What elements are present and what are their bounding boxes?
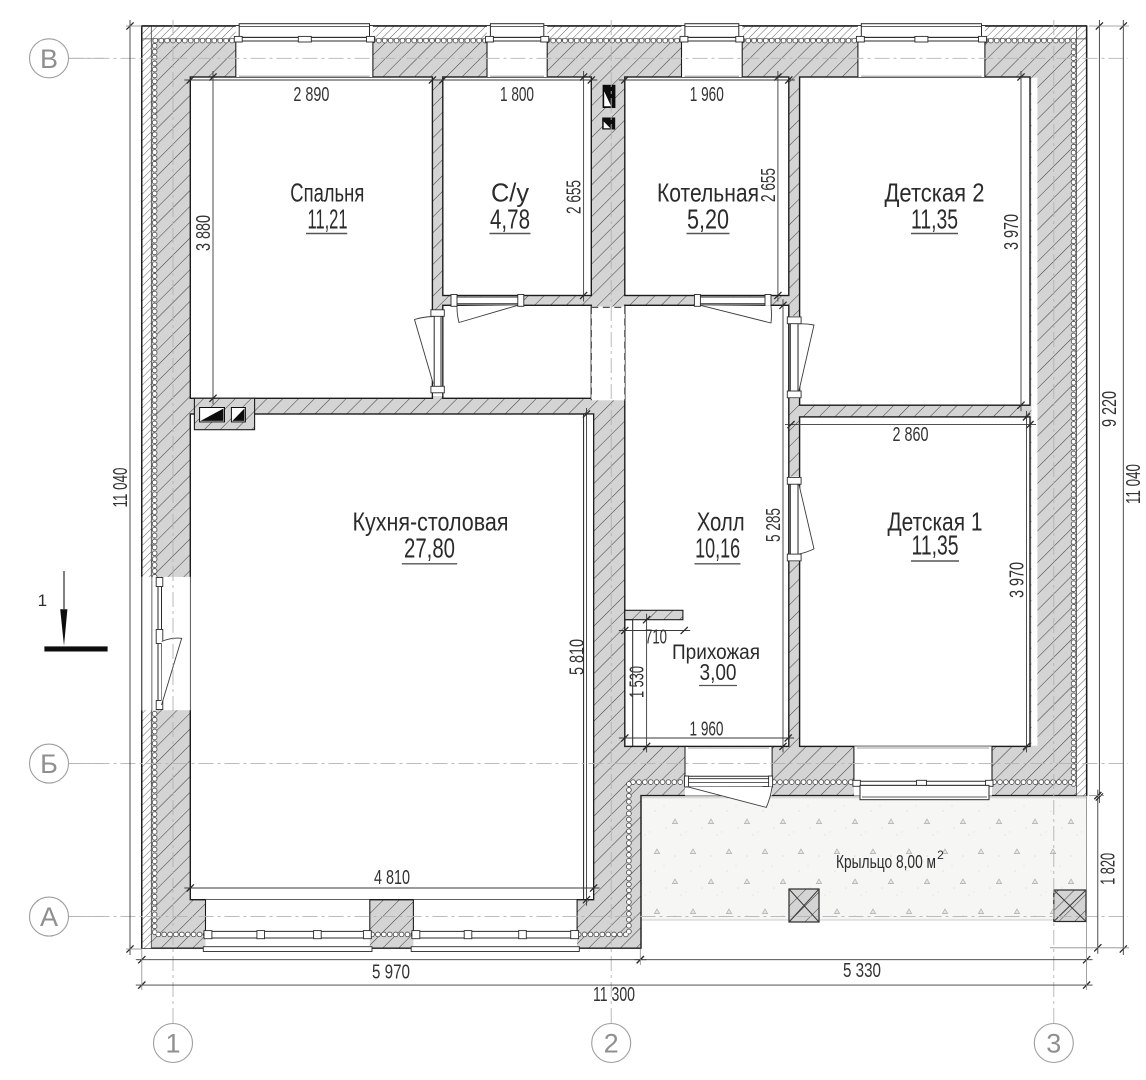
svg-text:2: 2 (604, 1029, 619, 1059)
svg-text:5 330: 5 330 (843, 960, 881, 982)
svg-text:1: 1 (165, 1029, 180, 1059)
svg-text:2 860: 2 860 (893, 424, 929, 446)
svg-text:11,21: 11,21 (308, 204, 348, 235)
svg-text:1 800: 1 800 (500, 84, 534, 106)
svg-text:3 970: 3 970 (1007, 562, 1029, 598)
svg-text:2: 2 (937, 848, 944, 862)
svg-text:В: В (40, 44, 58, 74)
svg-text:11 300: 11 300 (593, 984, 635, 1006)
svg-text:10,16: 10,16 (695, 533, 740, 564)
svg-text:2 655: 2 655 (564, 180, 586, 214)
svg-text:1: 1 (38, 591, 47, 610)
svg-text:5 285: 5 285 (763, 508, 785, 542)
svg-text:5 970: 5 970 (372, 962, 410, 984)
svg-text:1 820: 1 820 (1097, 853, 1119, 885)
svg-text:1 960: 1 960 (690, 719, 724, 741)
svg-text:1 530: 1 530 (627, 666, 649, 698)
svg-text:11,35: 11,35 (912, 530, 959, 561)
svg-text:9 220: 9 220 (1099, 391, 1121, 427)
svg-text:2 655: 2 655 (758, 168, 780, 202)
svg-text:Б: Б (40, 749, 58, 779)
svg-text:710: 710 (645, 626, 667, 648)
svg-text:2 890: 2 890 (293, 84, 329, 106)
svg-text:3: 3 (1046, 1029, 1061, 1059)
svg-text:5 810: 5 810 (567, 639, 589, 675)
svg-text:5,20: 5,20 (687, 204, 729, 235)
svg-text:4 810: 4 810 (374, 867, 410, 889)
svg-text:3 880: 3 880 (193, 215, 215, 251)
svg-text:А: А (40, 902, 58, 932)
svg-text:3 970: 3 970 (1001, 214, 1023, 250)
svg-text:27,80: 27,80 (404, 533, 455, 564)
svg-text:4,78: 4,78 (490, 204, 530, 235)
svg-text:11 040: 11 040 (1123, 464, 1145, 504)
svg-text:11 040: 11 040 (110, 468, 132, 508)
svg-text:1 960: 1 960 (690, 84, 724, 106)
svg-text:3,00: 3,00 (700, 659, 737, 685)
svg-text:Крыльцо 8,00 м: Крыльцо 8,00 м (836, 852, 936, 872)
svg-text:11,35: 11,35 (911, 204, 958, 235)
